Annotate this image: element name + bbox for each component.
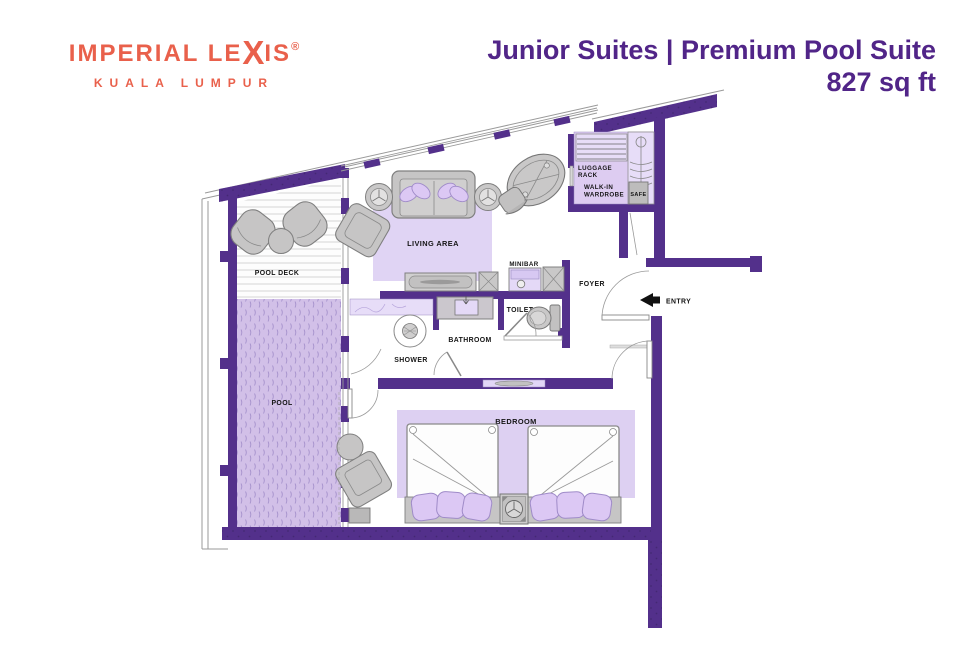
entry-label: ENTRY: [666, 299, 691, 306]
shower-head: [394, 315, 426, 347]
wardrobe-south-wall: [568, 204, 665, 212]
floorplan-page: IMPERIAL LEXIS® KUALA LUMPUR Junior Suit…: [0, 0, 980, 650]
foyer-wardrobe: LUGGAGE RACK WALK-IN WARDROBE SAFE FOYER: [570, 132, 691, 379]
side-table-lamp-right: [475, 184, 502, 211]
side-table-lamp-left: [366, 184, 393, 211]
vanity-sink: [437, 296, 493, 319]
pool: POOL: [237, 299, 341, 527]
shower-door-swing: [434, 352, 461, 376]
nightstand-lamp: [500, 494, 528, 524]
wardrobe-label-1: WALK-IN: [584, 184, 613, 191]
shower-marble-ledge: [350, 299, 433, 315]
luggage-rack-shelves: [576, 134, 627, 161]
bed-left: [405, 424, 500, 523]
floorplan-drawing: POOL DECK POOL LIVING AREA: [0, 0, 980, 650]
bathroom: SHOWER BATHROOM TOILET: [350, 296, 562, 376]
minibar-label: MINIBAR: [509, 261, 538, 268]
av-unit: [479, 272, 498, 291]
foyer-niche-wall: [619, 212, 628, 258]
bedroom: BEDROOM: [333, 380, 635, 524]
bedroom-east-wall: [651, 316, 662, 540]
bedroom-armchair: [333, 449, 394, 510]
safe-label: SAFE: [630, 192, 646, 198]
shower-label: SHOWER: [394, 357, 427, 364]
deck-door-swing: [351, 349, 381, 374]
deck-table: [269, 229, 294, 254]
toilet-room: TOILET: [504, 305, 562, 340]
bath-bedroom-door-swing: [348, 389, 378, 418]
foyer-niche-line: [630, 213, 637, 255]
wardrobe-label-2: WARDROBE: [584, 192, 624, 199]
wc-toilet: [527, 305, 560, 331]
pool-label: POOL: [271, 400, 292, 407]
wardrobe-slider: [570, 166, 573, 186]
minibar: MINIBAR: [509, 261, 564, 291]
sofa: [392, 171, 475, 218]
entry-marker: ENTRY: [640, 293, 691, 307]
tv-console: [405, 273, 476, 291]
luggage-rack-label-2: RACK: [578, 172, 598, 179]
wardrobe-east-wall: [654, 118, 665, 264]
living-area-label: LIVING AREA: [407, 239, 459, 248]
foyer-label: FOYER: [579, 281, 605, 288]
entry-arrow-icon: [640, 293, 653, 307]
bathroom-label: BATHROOM: [448, 337, 491, 344]
pool-deck-label: POOL DECK: [255, 270, 299, 277]
bedroom-label: BEDROOM: [495, 417, 536, 426]
luggage-rack-label-1: LUGGAGE: [578, 165, 612, 172]
left-exterior-wall: [228, 198, 237, 528]
bed-right: [526, 426, 621, 523]
safe-box: SAFE: [629, 182, 648, 204]
entry-door-swing: [602, 271, 649, 320]
wall-console: [483, 380, 545, 387]
bedroom-stool: [349, 508, 370, 523]
